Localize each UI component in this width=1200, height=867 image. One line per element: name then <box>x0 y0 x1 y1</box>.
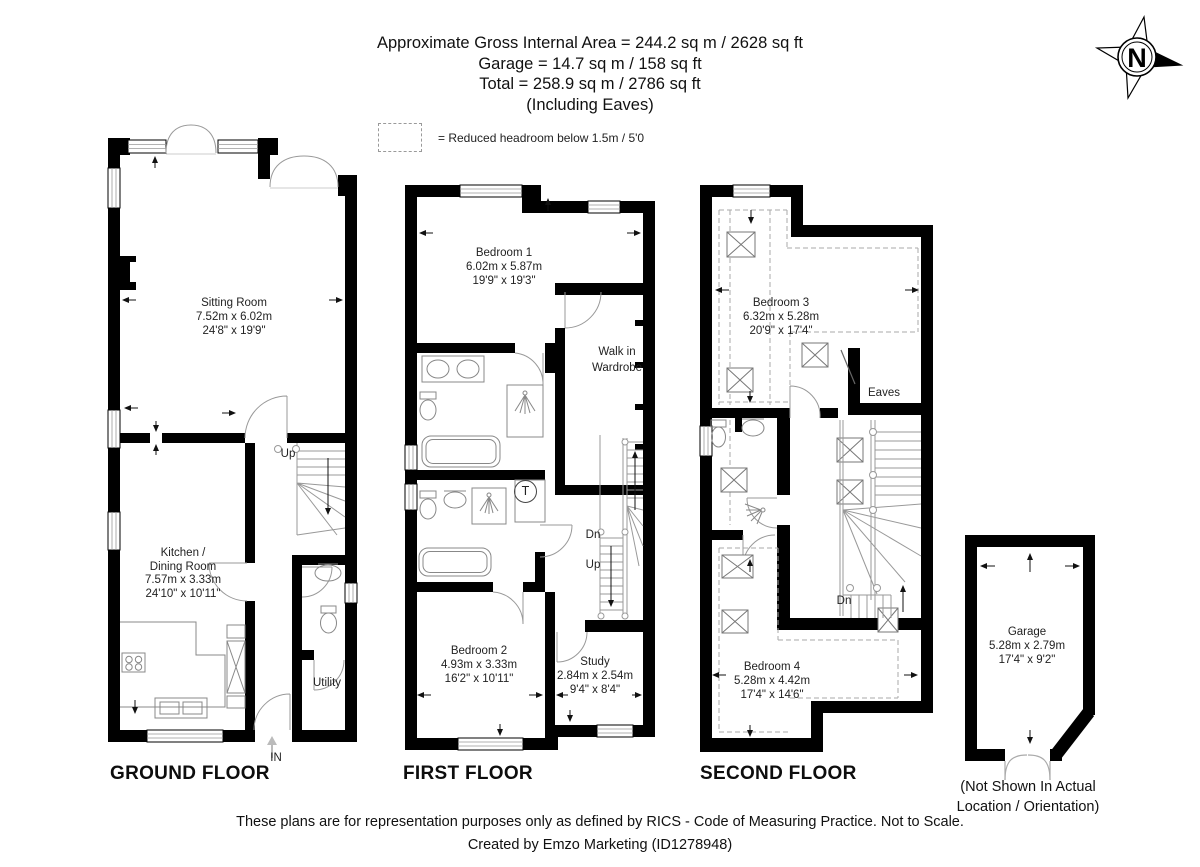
reduced-headroom-swatch <box>378 123 422 152</box>
room-name: Bedroom 3 <box>743 296 819 310</box>
bedroom2-label: Bedroom 2 4.93m x 3.33m 16'2" x 10'11" <box>441 644 517 686</box>
ground-walls <box>108 138 357 742</box>
study-label: Study 2.84m x 2.54m 9'4" x 8'4" <box>557 655 633 697</box>
basin-icon <box>742 419 764 436</box>
room-dim-imperial: 24'10" x 10'11" <box>145 588 221 602</box>
room-name: Bedroom 1 <box>466 246 542 260</box>
room-dim-metric: 6.32m x 5.28m <box>743 310 819 324</box>
including-eaves-line: (Including Eaves) <box>377 95 803 116</box>
hatch-box-icon <box>802 343 828 367</box>
room-name: Utility <box>313 676 341 690</box>
hatch-box-icon <box>878 608 898 632</box>
floorplan-page: Approximate Gross Internal Area = 244.2 … <box>0 0 1200 867</box>
hatch-box-icon <box>837 438 863 462</box>
double-basin-icon <box>422 356 484 382</box>
room-name: Garage <box>989 625 1065 639</box>
toilet-icon <box>711 420 726 447</box>
room-dim-metric: 5.28m x 2.79m <box>989 639 1065 653</box>
stairs-dn-label-second: Dn <box>837 595 852 607</box>
room-dim-metric: 7.52m x 6.02m <box>196 310 272 324</box>
garage-note-line: Location / Orientation) <box>957 797 1100 817</box>
room-dim-metric: 4.93m x 3.33m <box>441 658 517 672</box>
sitting-room-label: Sitting Room 7.52m x 6.02m 24'8" x 19'9" <box>196 296 272 338</box>
toilet-icon <box>420 392 436 420</box>
bathtub-icon <box>419 548 491 576</box>
stairs-dn-label-first: Dn <box>586 529 601 541</box>
north-compass: N <box>1093 14 1185 106</box>
room-name: Bedroom 2 <box>441 644 517 658</box>
room-name: Kitchen / <box>145 547 221 561</box>
room-name: Eaves <box>868 386 900 400</box>
hob-icon <box>122 653 145 672</box>
kitchen-fixtures <box>120 622 245 718</box>
hatch-box-icon <box>722 610 748 633</box>
fireplace-notch <box>130 262 136 282</box>
bedroom1-label: Bedroom 1 6.02m x 5.87m 19'9" x 19'3" <box>466 246 542 288</box>
second-floor-plan <box>693 180 938 755</box>
hatch-box-icon <box>722 555 753 578</box>
ground-floor-title: GROUND FLOOR <box>110 763 270 785</box>
eaves-label: Eaves <box>868 386 900 400</box>
room-dim-imperial: 24'8" x 19'9" <box>196 324 272 338</box>
garage-chamfer-wall <box>1055 712 1089 756</box>
shower-icon <box>507 385 543 437</box>
compass-star-icon: N <box>1097 17 1181 98</box>
room-dim-imperial: 19'9" x 19'3" <box>466 274 542 288</box>
room-name: Bedroom 4 <box>734 660 810 674</box>
kitchen-dining-label: Kitchen / Dining Room 7.57m x 3.33m 24'1… <box>145 547 221 601</box>
room-name: Wardrobe <box>592 360 642 376</box>
utility-label: Utility <box>313 676 341 690</box>
hatch-box-icon <box>727 232 755 257</box>
garage-area-line: Garage = 14.7 sq m / 158 sq ft <box>377 54 803 75</box>
room-dim-imperial: 17'4" x 14'6" <box>734 688 810 702</box>
kitchen-sink-icon <box>155 698 207 718</box>
garage-note: (Not Shown In Actual Location / Orientat… <box>957 777 1100 817</box>
reduced-headroom-lines <box>719 210 918 732</box>
area-summary: Approximate Gross Internal Area = 244.2 … <box>377 33 803 115</box>
rics-disclaimer: These plans are for representation purpo… <box>236 814 964 830</box>
first-floor-title: FIRST FLOOR <box>403 763 533 785</box>
stairs-up-label-ground: Up <box>281 448 296 460</box>
room-dim-imperial: 20'9" x 17'4" <box>743 324 819 338</box>
hatch-box-icon <box>721 468 747 492</box>
reduced-headroom-legend: = Reduced headroom below 1.5m / 5'0 <box>438 131 644 145</box>
ground-floor-plan <box>100 110 365 765</box>
gross-area-line: Approximate Gross Internal Area = 244.2 … <box>377 33 803 54</box>
kitchen-counter <box>120 622 225 707</box>
room-dim-imperial: 16'2" x 10'11" <box>441 672 517 686</box>
entrance-in-label: IN <box>270 752 282 764</box>
tall-unit-icon <box>227 625 245 708</box>
room-name: Sitting Room <box>196 296 272 310</box>
room-name: Study <box>557 655 633 669</box>
room-dim-metric: 5.28m x 4.42m <box>734 674 810 688</box>
room-name: Walk in <box>592 344 642 360</box>
wc-fixtures <box>315 564 341 633</box>
room-dim-metric: 6.02m x 5.87m <box>466 260 542 274</box>
room-name: Dining Room <box>145 561 221 575</box>
shower-icon <box>472 488 506 524</box>
walk-in-wardrobe-label: Walk in Wardrobe <box>592 344 642 376</box>
room-dim-imperial: 17'4" x 9'2" <box>989 653 1065 667</box>
tank-symbol: T <box>514 480 537 503</box>
toilet-icon <box>321 606 337 633</box>
created-by-line: Created by Emzo Marketing (ID1278948) <box>468 837 732 853</box>
basin-icon <box>444 491 466 508</box>
hatch-box-icon <box>837 480 863 504</box>
bathtub-icon <box>422 436 500 467</box>
stairs-up-label-first: Up <box>586 559 601 571</box>
first-stairs-icon <box>598 435 643 619</box>
room-dim-metric: 2.84m x 2.54m <box>557 669 633 683</box>
total-area-line: Total = 258.9 sq m / 2786 sq ft <box>377 74 803 95</box>
bedroom4-label: Bedroom 4 5.28m x 4.42m 17'4" x 14'6" <box>734 660 810 702</box>
first-fixtures <box>419 356 545 576</box>
toilet-icon <box>420 491 436 519</box>
garage-label: Garage 5.28m x 2.79m 17'4" x 9'2" <box>989 625 1065 667</box>
compass-n-letter: N <box>1127 43 1147 73</box>
garage-note-line: (Not Shown In Actual <box>957 777 1100 797</box>
room-dim-imperial: 9'4" x 8'4" <box>557 683 633 697</box>
second-floor-title: SECOND FLOOR <box>700 763 857 785</box>
bedroom3-label: Bedroom 3 6.32m x 5.28m 20'9" x 17'4" <box>743 296 819 338</box>
room-dim-metric: 7.57m x 3.33m <box>145 574 221 588</box>
hatch-box-icon <box>727 368 753 392</box>
